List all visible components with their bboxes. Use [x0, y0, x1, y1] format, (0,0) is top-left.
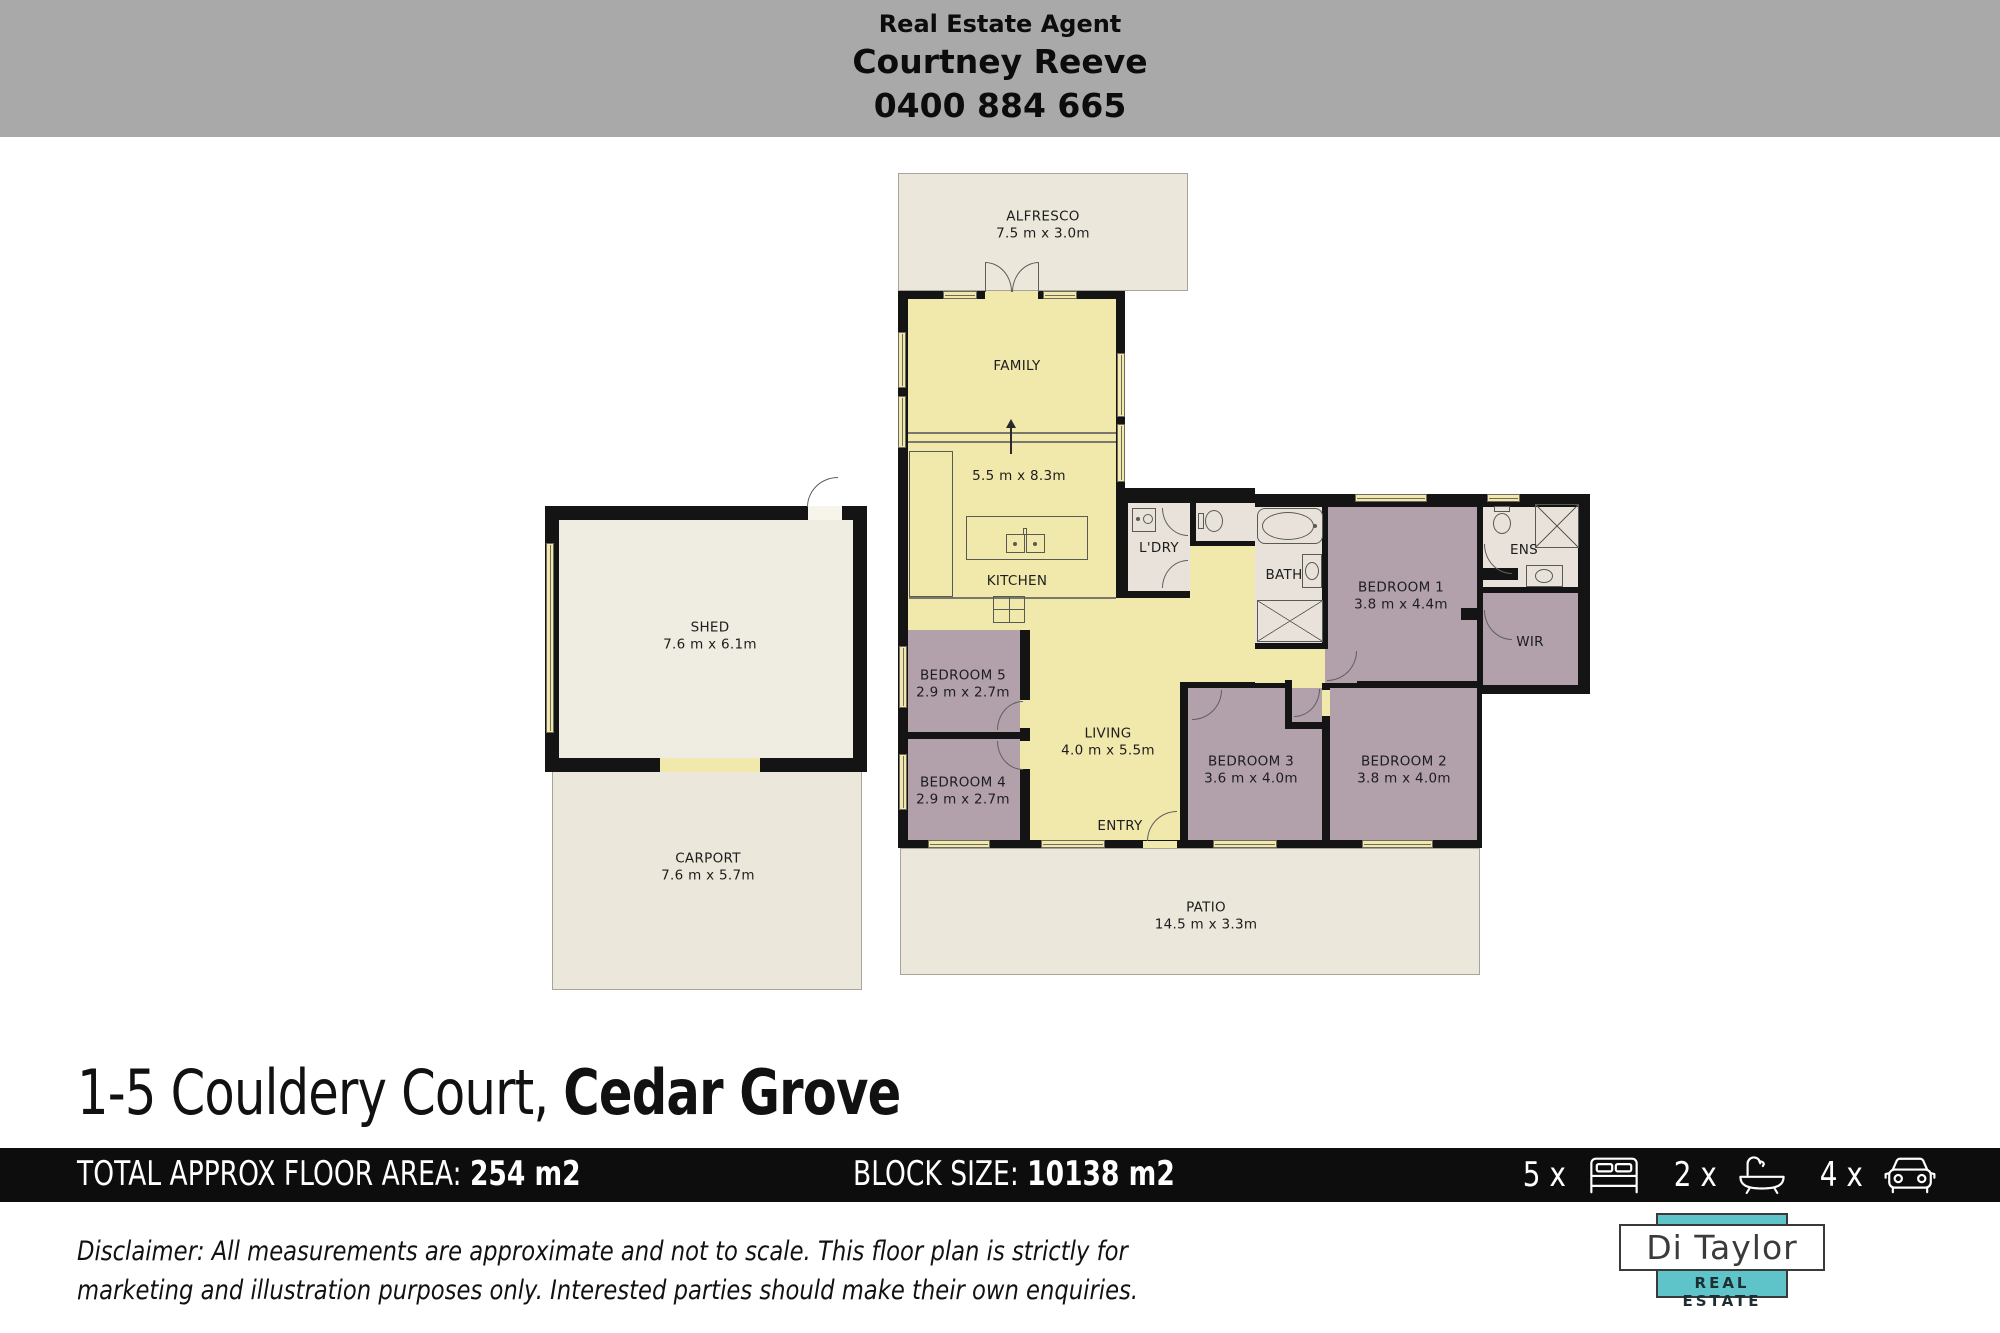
room-label-carport: CARPORT 7.6 m x 5.7m [661, 851, 755, 884]
room-label-living: LIVING 4.0 m x 5.5m [1061, 726, 1155, 759]
room-label-bath: BATH [1265, 567, 1302, 584]
floor-plan: ALFRESCO 7.5 m x 3.0m FAMILY 5.5 m x 8.3… [0, 137, 2000, 1047]
window-bedroom4 [899, 754, 907, 810]
shed-door-gap [808, 506, 842, 520]
room-label-patio: PATIO 14.5 m x 3.3m [1155, 900, 1258, 933]
bath-door-gap [1248, 558, 1255, 598]
window-ensuite-north [1487, 494, 1520, 502]
kitchen-counter-left [909, 451, 953, 597]
meals-divider-line-2 [908, 441, 1116, 443]
north-arrow [1010, 428, 1012, 454]
meals-divider-line-1 [908, 432, 1116, 434]
bed-icon [1585, 1154, 1643, 1196]
floor-area-text: TOTAL APPROX FLOOR AREA: 254 m2 [77, 1154, 581, 1194]
wc-toilet-bowl [1205, 510, 1223, 532]
washing-machine-knob [1136, 517, 1140, 521]
room-label-alfresco: ALFRESCO 7.5 m x 3.0m [996, 209, 1090, 242]
window-bedroom4-south [928, 840, 990, 848]
cars-badge: 4 x [1815, 1153, 1938, 1197]
entry-door-gap [1143, 841, 1177, 848]
wall-stub-wir [1461, 608, 1477, 620]
window-bedroom3-south [1213, 840, 1277, 848]
wall-stub-notch-h [1285, 722, 1325, 729]
bath-vanity-basin [1305, 562, 1319, 580]
disclaimer-line2: marketing and illustration purposes only… [77, 1271, 1138, 1310]
window-bedroom2-south [1362, 840, 1433, 848]
room-label-wir: WIR [1516, 634, 1544, 651]
room-label-bedroom3: BEDROOM 3 3.6 m x 4.0m [1204, 754, 1298, 787]
shed-carport-opening [660, 758, 760, 772]
ens-toilet-tank [1494, 506, 1510, 512]
window-living-south [1041, 840, 1105, 848]
address-suburb: Cedar Grove [563, 1056, 900, 1129]
bathtub-inner [1262, 512, 1314, 540]
room-label-bedroom1: BEDROOM 1 3.8 m x 4.4m [1354, 580, 1448, 613]
agent-name: Courtney Reeve [0, 42, 2000, 81]
agency-logo-name: Di Taylor [1646, 1228, 1797, 1267]
hall-under-laundry [1116, 598, 1255, 682]
kitchen-tap [1023, 528, 1027, 535]
room-label-bedroom2: BEDROOM 2 3.8 m x 4.0m [1357, 754, 1451, 787]
bath-shower-icon [1257, 600, 1323, 642]
shed-door-arc [807, 477, 838, 507]
north-arrow-head [1006, 419, 1016, 428]
window-family-left-1 [898, 332, 906, 388]
agency-logo-box: Di Taylor [1619, 1224, 1825, 1271]
hall-to-bed1 [1255, 649, 1325, 683]
agency-logo-tagline: REAL ESTATE [1656, 1274, 1788, 1310]
beds-badge: 5 x [1518, 1154, 1643, 1196]
room-label-bedroom5: BEDROOM 5 2.9 m x 2.7m [916, 668, 1010, 701]
window-family-top-right [1043, 291, 1077, 299]
sink-drain-left [1013, 542, 1017, 546]
car-icon [1882, 1153, 1938, 1197]
disclaimer-line1: Disclaimer: All measurements are approxi… [77, 1232, 1138, 1271]
alfresco-door-gap [985, 291, 1038, 299]
window-bedroom1-north [1355, 494, 1427, 502]
agent-phone: 0400 884 665 [0, 86, 2000, 125]
sink-drain-right [1033, 542, 1037, 546]
room-dims-family: 5.5 m x 8.3m [972, 468, 1066, 485]
agent-banner: Real Estate Agent Courtney Reeve 0400 88… [0, 0, 2000, 137]
stove-icon [993, 596, 1025, 623]
address-street: 1-5 Couldery Court, [77, 1056, 563, 1129]
ens-vanity-basin [1535, 569, 1553, 583]
room-label-bedroom4: BEDROOM 4 2.9 m x 2.7m [916, 775, 1010, 808]
room-label-family: FAMILY [993, 358, 1040, 375]
agent-banner-heading: Real Estate Agent [0, 10, 2000, 38]
bath-icon [1735, 1153, 1789, 1197]
room-label-ensuite: ENS [1510, 542, 1538, 559]
baths-count: 2 x [1674, 1155, 1717, 1195]
hall-beside-bath [1190, 546, 1255, 598]
room-label-shed: SHED 7.6 m x 6.1m [663, 620, 757, 653]
washing-machine-door [1143, 514, 1153, 524]
feature-badges: 5 x 2 x [1518, 1148, 1938, 1202]
room-label-kitchen: KITCHEN [987, 573, 1048, 590]
wc-toilet-tank [1198, 513, 1204, 529]
beds-count: 5 x [1523, 1155, 1566, 1195]
room-label-laundry: L'DRY [1139, 540, 1179, 557]
window-family-top-left [943, 291, 977, 299]
baths-badge: 2 x [1669, 1153, 1790, 1197]
window-family-left-2 [898, 396, 906, 448]
window-family-right-2 [1117, 424, 1125, 482]
property-address: 1-5 Couldery Court, Cedar Grove [77, 1056, 900, 1129]
cars-count: 4 x [1820, 1155, 1863, 1195]
bedroom2-door-gap [1322, 690, 1330, 716]
block-size-text: BLOCK SIZE: 10138 m2 [853, 1154, 1175, 1194]
ens-toilet-bowl [1493, 513, 1511, 534]
ens-shower-icon [1535, 504, 1579, 548]
floor-plan-page: Real Estate Agent Courtney Reeve 0400 88… [0, 0, 2000, 1333]
wall-stub-notch-v [1285, 680, 1292, 728]
stats-bar: TOTAL APPROX FLOOR AREA: 254 m2 BLOCK SI… [0, 1148, 2000, 1202]
bathtub-tap [1313, 524, 1317, 528]
disclaimer-text: Disclaimer: All measurements are approxi… [77, 1232, 1138, 1310]
window-bedroom5 [899, 646, 907, 708]
shed-window [546, 543, 554, 733]
window-family-right-1 [1117, 353, 1125, 417]
room-label-entry: ENTRY [1097, 818, 1142, 835]
